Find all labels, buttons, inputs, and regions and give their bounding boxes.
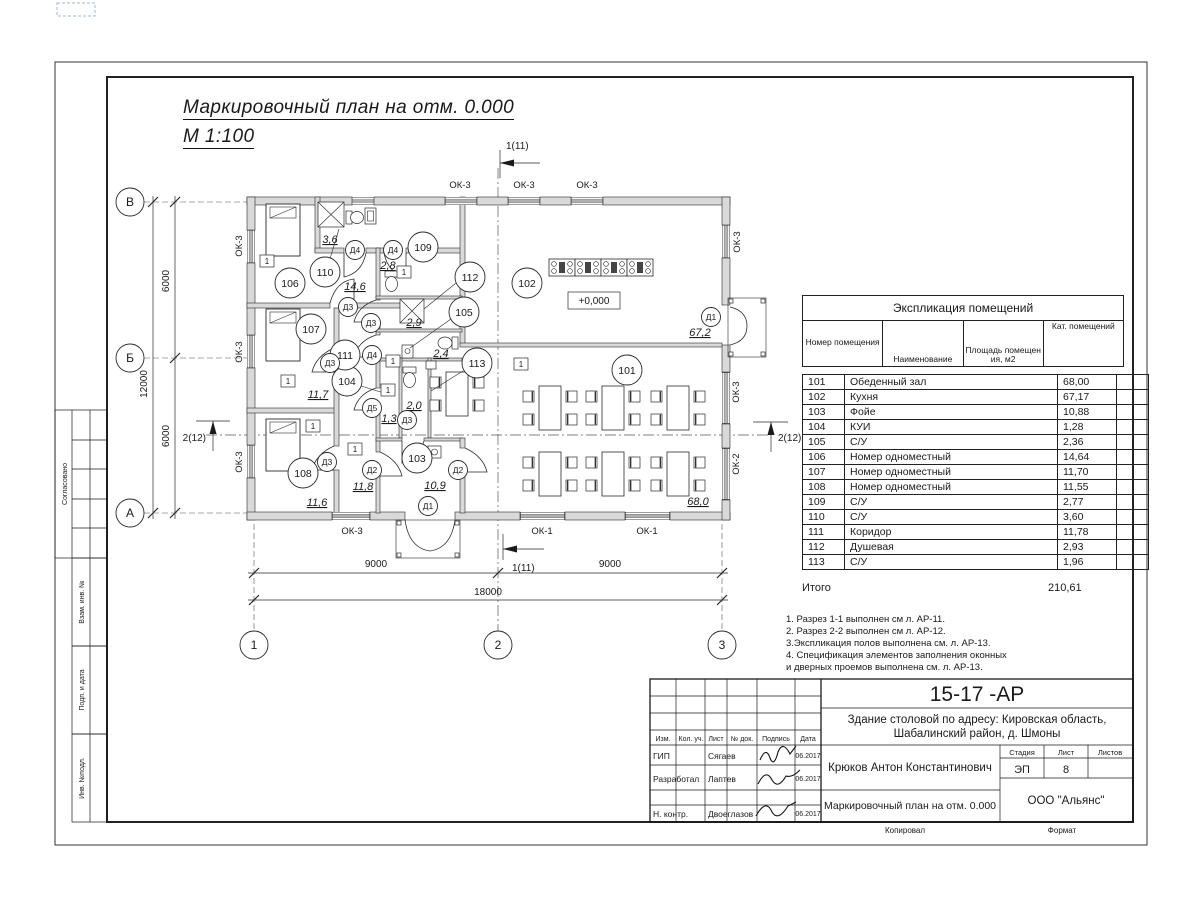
note-line: 3.Экспликация полов выполнена см. л. АР-… bbox=[786, 638, 1048, 650]
wall-mark: 1 bbox=[402, 268, 407, 277]
col-koluch: Кол. уч. bbox=[679, 736, 704, 743]
door-d1-kitchen: Д1 bbox=[706, 312, 717, 322]
date-razrabotal: 06.2017 bbox=[795, 776, 820, 783]
wall-mark: 1 bbox=[391, 357, 396, 366]
room-103-number: 103 bbox=[408, 453, 426, 465]
cell-name: С/У bbox=[845, 555, 1058, 570]
window-ok3-left2: ОК-3 bbox=[234, 341, 245, 362]
wall-mark: 1 bbox=[353, 445, 358, 454]
side-label-vzam: Взам. инв. № bbox=[79, 580, 86, 623]
cell-num: 113 bbox=[803, 555, 845, 570]
schedule-col-area: Площадь помещения, м2 bbox=[963, 321, 1043, 367]
door-d3-113: Д3 bbox=[402, 415, 413, 425]
schedule-col-cat: Кат. помещений bbox=[1043, 321, 1123, 367]
area-110: 3,6 bbox=[322, 234, 338, 246]
table-row: 112Душевая2,93 bbox=[803, 540, 1149, 555]
cell-cat bbox=[1117, 480, 1149, 495]
table-row: 106Номер одноместный14,64 bbox=[803, 450, 1149, 465]
cell-name: Душевая bbox=[845, 540, 1058, 555]
wall-mark: 1 bbox=[311, 422, 316, 431]
cell-name: КУИ bbox=[845, 420, 1058, 435]
section-1-bottom-label: 1(11) bbox=[512, 563, 535, 574]
cell-cat bbox=[1117, 495, 1149, 510]
door-d3-107: Д3 bbox=[325, 358, 336, 368]
col-podpis: Подпись bbox=[762, 736, 790, 743]
dim-9000-right: 9000 bbox=[599, 559, 622, 570]
door-d4-105: Д4 bbox=[367, 350, 378, 360]
cell-num: 101 bbox=[803, 375, 845, 390]
schedule-col-number: Номер помещения bbox=[803, 321, 883, 367]
name-gip: Сягаев bbox=[708, 751, 736, 761]
cell-num: 105 bbox=[803, 435, 845, 450]
schedule-total-label: Итого bbox=[802, 582, 831, 594]
door-d3-112: Д3 bbox=[366, 318, 377, 328]
cell-num: 102 bbox=[803, 390, 845, 405]
axis-col-3: 3 bbox=[719, 638, 726, 652]
cell-cat bbox=[1117, 525, 1149, 540]
cell-num: 108 bbox=[803, 480, 845, 495]
area-108: 11,6 bbox=[307, 497, 328, 509]
stage-value: ЭП bbox=[1014, 764, 1030, 776]
room-110-number: 110 bbox=[317, 267, 334, 279]
cell-num: 103 bbox=[803, 405, 845, 420]
schedule-title: Экспликация помещений bbox=[803, 296, 1124, 321]
door-d2-left: Д2 bbox=[367, 465, 378, 475]
cell-cat bbox=[1117, 465, 1149, 480]
table-row: 108Номер одноместный11,55 bbox=[803, 480, 1149, 495]
margin-blocks: Согласовано Взам. инв. № Подп. и дата Ин… bbox=[55, 410, 107, 822]
axis-col-1: 1 bbox=[251, 638, 258, 652]
cell-cat bbox=[1117, 540, 1149, 555]
cell-cat bbox=[1117, 390, 1149, 405]
door-d5-104: Д5 bbox=[367, 403, 378, 413]
sheet-title-line1: Маркировочный план на отм. 0.000 bbox=[183, 97, 514, 120]
window-ok3-top2: ОК-3 bbox=[513, 180, 534, 191]
cell-name: С/У bbox=[845, 435, 1058, 450]
room-102-number: 102 bbox=[518, 278, 536, 290]
table-row: 101Обеденный зал68,00 bbox=[803, 375, 1149, 390]
role-gip: ГИП bbox=[653, 751, 670, 761]
wall-mark: 1 bbox=[519, 360, 524, 369]
level-mark: +0,000 bbox=[568, 292, 620, 309]
room-schedule: Экспликация помещений Номер помещения На… bbox=[802, 295, 1124, 367]
cell-cat bbox=[1117, 555, 1149, 570]
room-106-number: 106 bbox=[281, 278, 299, 290]
date-nkontr: 06.2017 bbox=[795, 811, 820, 818]
table-row: 109С/У2,77 bbox=[803, 495, 1149, 510]
room-107-number: 107 bbox=[302, 324, 320, 336]
room-112-number: 112 bbox=[462, 272, 479, 284]
window-ok3-right1: ОК-3 bbox=[732, 231, 743, 252]
date-gip: 06.2017 bbox=[795, 753, 820, 760]
note-line: и дверных проемов выполнена см. л. АР-13… bbox=[786, 662, 1048, 674]
title-block: 15-17 -АР Здание столовой по адресу: Кир… bbox=[650, 679, 1133, 835]
area-107: 11,7 bbox=[308, 389, 329, 401]
cell-area: 1,96 bbox=[1058, 555, 1117, 570]
area-104: 1,3 bbox=[381, 413, 397, 425]
cell-area: 10,88 bbox=[1058, 405, 1117, 420]
cell-num: 107 bbox=[803, 465, 845, 480]
cell-cat bbox=[1117, 420, 1149, 435]
format-label: Формат bbox=[1048, 826, 1077, 835]
area-101: 68,0 bbox=[687, 496, 709, 508]
room-104-number: 104 bbox=[338, 376, 356, 388]
sheets-label: Листов bbox=[1098, 748, 1122, 757]
window-ok2-right: ОК-2 bbox=[731, 453, 742, 474]
cell-name: Номер одноместный bbox=[845, 450, 1058, 465]
schedule-col-name: Наименование bbox=[883, 321, 963, 367]
door-d2-right: Д2 bbox=[453, 465, 464, 475]
col-dok: № док. bbox=[731, 736, 753, 743]
name-nkontr: Двоеглазов bbox=[708, 809, 754, 819]
cell-name: Обеденный зал bbox=[845, 375, 1058, 390]
window-ok3-left1: ОК-3 bbox=[234, 235, 245, 256]
author-name: Крюков Антон Константинович bbox=[828, 762, 992, 774]
cell-num: 111 bbox=[803, 525, 845, 540]
window-ok3-top3: ОК-3 bbox=[576, 180, 597, 191]
area-109: 2,8 bbox=[379, 260, 396, 272]
project-name-line2: Шабалинский район, д. Шмоны bbox=[894, 728, 1061, 740]
cell-cat bbox=[1117, 375, 1149, 390]
signature-nkontr bbox=[756, 802, 796, 816]
area-103: 10,9 bbox=[424, 480, 445, 492]
cell-num: 112 bbox=[803, 540, 845, 555]
cell-name: Кухня bbox=[845, 390, 1058, 405]
note-line: 1. Разрез 1-1 выполнен см л. АР-11. bbox=[786, 614, 1048, 626]
drawing-sheet: Согласовано Взам. инв. № Подп. и дата Ин… bbox=[0, 0, 1200, 900]
axis-row-b: Б bbox=[126, 351, 134, 365]
wall-mark: 1 bbox=[286, 377, 291, 386]
note-line: 2. Разрез 2-2 выполнен см л. АР-12. bbox=[786, 626, 1048, 638]
table-row: 102Кухня67,17 bbox=[803, 390, 1149, 405]
door-d3-108: Д3 bbox=[322, 457, 333, 467]
door-d4-left: Д4 bbox=[350, 245, 361, 255]
organization: ООО "Альянс" bbox=[1028, 795, 1105, 807]
note-line: 4. Спецификация элементов заполнения око… bbox=[786, 650, 1048, 662]
stage-label: Стадия bbox=[1009, 748, 1035, 757]
room-109-number: 109 bbox=[414, 242, 432, 254]
col-list: Лист bbox=[708, 736, 724, 743]
axis-row-v: В bbox=[126, 195, 134, 209]
dim-12000: 12000 bbox=[139, 370, 150, 398]
corner-box bbox=[57, 3, 95, 16]
cell-cat bbox=[1117, 435, 1149, 450]
area-111: 11,8 bbox=[353, 481, 374, 493]
room-108-number: 108 bbox=[294, 468, 312, 480]
signature-gip bbox=[760, 746, 796, 762]
schedule-total-value: 210,61 bbox=[1048, 582, 1082, 594]
cell-name: С/У bbox=[845, 495, 1058, 510]
cell-area: 11,70 bbox=[1058, 465, 1117, 480]
axis-col-2: 2 bbox=[495, 638, 502, 652]
cell-area: 2,36 bbox=[1058, 435, 1117, 450]
role-nkontr: Н. контр. bbox=[653, 809, 688, 819]
door-d1-entrance: Д1 bbox=[423, 501, 434, 511]
col-data: Дата bbox=[800, 736, 816, 743]
cell-area: 1,28 bbox=[1058, 420, 1117, 435]
cell-name: Коридор bbox=[845, 525, 1058, 540]
cell-area: 2,77 bbox=[1058, 495, 1117, 510]
side-label-podp: Подп. и дата bbox=[79, 669, 86, 710]
room-105-number: 105 bbox=[455, 307, 473, 319]
cell-name: Номер одноместный bbox=[845, 465, 1058, 480]
table-row: 110С/У3,60 bbox=[803, 510, 1149, 525]
room-113-number: 113 bbox=[469, 358, 486, 370]
project-name-line1: Здание столовой по адресу: Кировская обл… bbox=[848, 714, 1107, 726]
cell-num: 104 bbox=[803, 420, 845, 435]
section-2-left-label: 2(12) bbox=[183, 433, 206, 444]
name-razrabotal: Лаптев bbox=[708, 774, 736, 784]
cell-num: 106 bbox=[803, 450, 845, 465]
cell-num: 110 bbox=[803, 510, 845, 525]
side-label-agreed: Согласовано bbox=[62, 463, 69, 505]
cell-cat bbox=[1117, 510, 1149, 525]
doc-code: 15-17 -АР bbox=[930, 683, 1025, 706]
cell-area: 68,00 bbox=[1058, 375, 1117, 390]
cell-cat bbox=[1117, 405, 1149, 420]
dim-6000-upper: 6000 bbox=[161, 269, 172, 292]
role-razrabotal: Разработал bbox=[653, 774, 699, 784]
window-ok3-right2: ОК-3 bbox=[731, 381, 742, 402]
signature-razrabotal bbox=[758, 770, 800, 784]
table-row: 105С/У2,36 bbox=[803, 435, 1149, 450]
copied-label: Копировал bbox=[885, 826, 925, 835]
wall-mark: 1 bbox=[265, 257, 270, 266]
dim-6000-lower: 6000 bbox=[161, 424, 172, 447]
dim-9000-left: 9000 bbox=[365, 559, 388, 570]
dim-18000: 18000 bbox=[474, 587, 502, 598]
window-ok3-top1: ОК-3 bbox=[449, 180, 470, 191]
sheet-number: 8 bbox=[1063, 764, 1069, 776]
cell-area: 2,93 bbox=[1058, 540, 1117, 555]
cell-cat bbox=[1117, 450, 1149, 465]
window-ok1-bottom1: ОК-1 bbox=[531, 526, 552, 537]
schedule-total-row: Итого 210,61 bbox=[802, 582, 1124, 594]
section-2-right-label: 2(12) bbox=[778, 433, 801, 444]
cell-area: 11,78 bbox=[1058, 525, 1117, 540]
door-d3-106: Д3 bbox=[343, 302, 354, 312]
sheet-title-scale: М 1:100 bbox=[183, 126, 254, 149]
schedule-body-table: 101Обеденный зал68,00 102Кухня67,17 103Ф… bbox=[802, 374, 1149, 570]
wall-mark: 1 bbox=[386, 386, 391, 395]
table-row: 103Фойе10,88 bbox=[803, 405, 1149, 420]
notes: 1. Разрез 1-1 выполнен см л. АР-11. 2. Р… bbox=[786, 614, 1048, 673]
cell-area: 14,64 bbox=[1058, 450, 1117, 465]
cell-name: Фойе bbox=[845, 405, 1058, 420]
area-112: 2,9 bbox=[405, 317, 421, 329]
window-ok3-bottom: ОК-3 bbox=[341, 526, 362, 537]
table-row: 113С/У1,96 bbox=[803, 555, 1149, 570]
sheet-label: Лист bbox=[1058, 748, 1075, 757]
table-row: 107Номер одноместный11,70 bbox=[803, 465, 1149, 480]
table-row: 104КУИ1,28 bbox=[803, 420, 1149, 435]
room-101-number: 101 bbox=[618, 365, 636, 377]
cell-area: 67,17 bbox=[1058, 390, 1117, 405]
cell-area: 3,60 bbox=[1058, 510, 1117, 525]
cell-num: 109 bbox=[803, 495, 845, 510]
side-label-inv: Инв. №подл. bbox=[79, 757, 86, 799]
area-106: 14,6 bbox=[344, 281, 366, 293]
drawing-title: Маркировочный план на отм. 0.000 bbox=[824, 800, 996, 812]
window-ok1-bottom2: ОК-1 bbox=[636, 526, 657, 537]
area-102: 67,2 bbox=[689, 327, 710, 339]
schedule-header-table: Экспликация помещений Номер помещения На… bbox=[802, 295, 1124, 367]
cell-area: 11,55 bbox=[1058, 480, 1117, 495]
axis-row-a: А bbox=[126, 506, 134, 520]
window-ok3-left3: ОК-3 bbox=[234, 451, 245, 472]
table-row: 111Коридор11,78 bbox=[803, 525, 1149, 540]
door-d4-right: Д4 bbox=[388, 245, 399, 255]
level-mark-text: +0,000 bbox=[579, 296, 610, 307]
col-izm: Изм. bbox=[656, 736, 671, 743]
area-105: 2,4 bbox=[432, 348, 448, 360]
sheet-title: Маркировочный план на отм. 0.000 М 1:100 bbox=[183, 94, 514, 151]
cell-name: С/У bbox=[845, 510, 1058, 525]
cell-name: Номер одноместный bbox=[845, 480, 1058, 495]
